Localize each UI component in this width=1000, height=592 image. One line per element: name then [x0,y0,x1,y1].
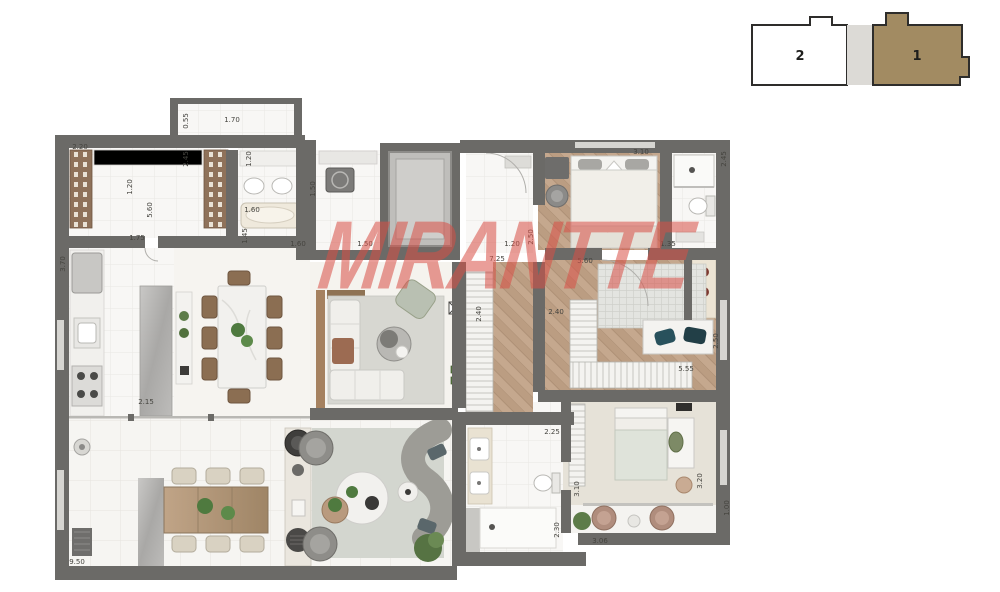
keyplan: 2 1 [752,13,969,85]
watermark: MIRANTTE [313,200,697,311]
keyplan-unit-1-label: 1 [912,49,921,64]
keyplan-core [847,25,873,85]
floor-plan-canvas: 2 1 2.201.700.551.205.602.451.201.751.60… [0,0,1000,592]
keyplan-unit-2-label: 2 [795,49,804,64]
